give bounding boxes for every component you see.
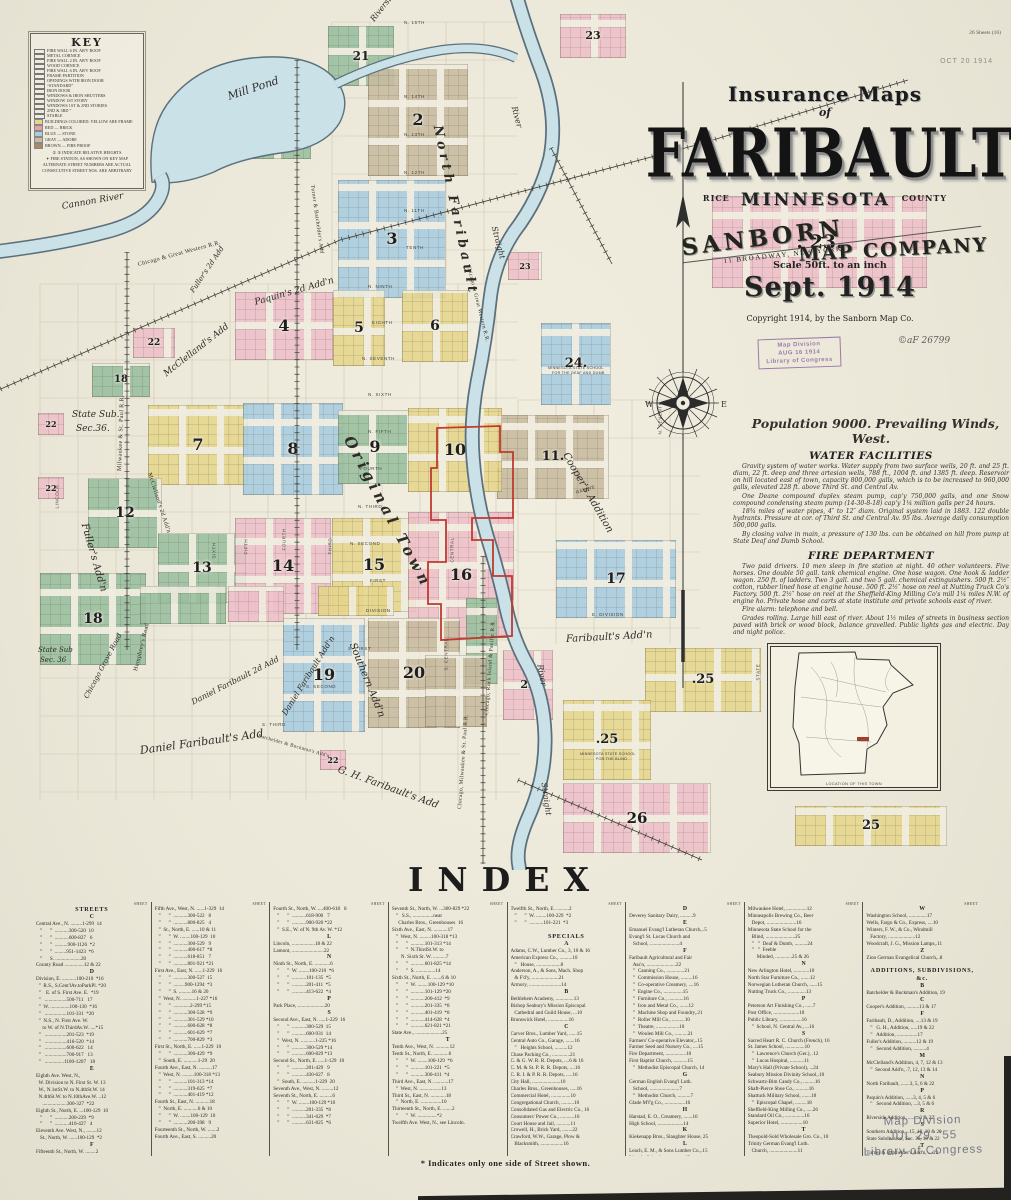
index-entry: Bishop Seabury's Mission Episcopal	[511, 1003, 623, 1010]
key-color-swatch	[34, 143, 43, 149]
index-entry: North Faribault, .......3, 5, 6 & 22	[866, 1081, 978, 1088]
index-entry: ” ” ...........401-419 *12	[155, 1092, 267, 1099]
key-color-label: GRAY — ADOBE	[45, 138, 77, 143]
index-entry: Milwaukee Hotel, ................12	[748, 906, 860, 913]
index-entry: ” Canning Co., ..............21	[629, 968, 741, 975]
key-footnote: CONSECUTIVE STREET NOS. ARE ARBITRARY	[34, 168, 140, 173]
index-entry: ADDITIONS, SUBDIVISIONS, &c.	[866, 967, 978, 983]
index-entry: ” ” W. ........100-210 *6	[273, 968, 385, 975]
index-entry: Washington School, ..............17	[866, 913, 978, 920]
index-entry: ” ” ...........300-528 *9	[155, 1010, 267, 1017]
index-entry: ” ” ...........618-851 7	[155, 954, 267, 961]
city-title: FARIBAULT	[646, 114, 1005, 193]
index-entry: School, .......................4	[629, 941, 741, 948]
index-entry: ” ” ...........300-411 *4	[392, 1072, 504, 1079]
index-entry: High School, ....................14	[629, 1121, 741, 1128]
fire-department-title: FIRE DEPARTMENT	[733, 550, 1009, 562]
index-entry: Nutting Truck Co., ..............13	[748, 989, 860, 996]
index-entry: Crawford, W.W., Garage, Plow &	[511, 1134, 623, 1141]
index-entry: Public Library, .................16	[748, 1017, 860, 1024]
index-entry: Carver Bros., Lumber Yard, ......15	[511, 1031, 623, 1038]
index-entry: ” ” .............2-299 *15	[155, 1003, 267, 1010]
stats-paragraph: 18¾ miles of water pipes, 4″ to 12″ diam…	[733, 509, 1009, 530]
index-entry: ” Second Add'n, .7, 12, 13 & 14	[866, 1067, 978, 1074]
index-entry: Brunswick Hotel, ................16	[511, 1017, 623, 1024]
index-entry: Fifth Ave., West, N. ......1-329 14	[155, 906, 267, 913]
index-entry: ” ” Deaf & Dumb, ..........24	[748, 941, 860, 948]
index-entry: ” ” .........900-1294 *3	[155, 982, 267, 989]
index-entry: City Hall, ......................10	[511, 1079, 623, 1086]
index-entry: D	[629, 906, 741, 913]
index-entry: ” ” ...........400-617 *8	[155, 947, 267, 954]
index-entry: ” Iron and Metal Co., .......12	[629, 1003, 741, 1010]
index-entry: Evang'l St. Lucas Church and	[629, 934, 741, 941]
index-entry: First Ave., East, N. ......1-229 16	[155, 968, 267, 975]
index-entry: ” ” N.ThirdSt.W. to	[392, 947, 504, 954]
index-entry: Thirteenth St., North, E. .......2	[392, 1106, 504, 1113]
index-entry: ” Second Addition, ...3, 5 & 6	[866, 1101, 978, 1108]
index-entry: ” ” ...........600-829 *13	[273, 1051, 385, 1058]
index-entry: Sixth Ave., East, N. ...........17	[392, 927, 504, 934]
key-color-label: RED — BRICK	[45, 126, 72, 131]
index-entry: & F'd'y, .....................21	[511, 975, 623, 982]
key-color-entry: BROWN — FIRE PROOF	[34, 143, 140, 149]
index-entry: Wells, Fargo & Co., Express, ....10	[866, 920, 978, 927]
index-entry: ” E. of S. First Ave. E. *19	[36, 990, 148, 997]
index-entry: C	[36, 914, 148, 921]
key-color-label: BROWN — FIRE PROOF	[45, 144, 91, 149]
index-entry: ” Co-operative Creamery, ....16	[629, 982, 741, 989]
index-entry: Court House and Jail, ...........11	[511, 1121, 623, 1128]
index-entry: Schwartz-Bim Candy Co., .........16	[748, 1079, 860, 1086]
index-entry: Fuller's Addition, ..........12 & 19	[866, 1039, 978, 1046]
index-column: SHEETSeventh St., North, W. ...300-829 *…	[388, 902, 507, 1156]
index-entry: ” ” ...........414-628 *4	[392, 1017, 504, 1024]
index-entry: ” ” ..........900-1126 *2	[36, 942, 148, 949]
minnesota-outline	[771, 647, 935, 779]
index-entry: ” ” W. ........100-229 *2	[511, 913, 623, 920]
index-entry: ” ” ...........621-821 *21	[392, 1023, 504, 1030]
index-entry: ” Addition, ................17	[866, 1032, 978, 1039]
index-entry: ” ” ...........201-335 *8	[273, 1107, 385, 1114]
straight-river	[472, 0, 552, 870]
index-entry: Leach, E. M., & Sons Lumber Co.,.15	[629, 1148, 741, 1155]
index-entry: Norwegian Lutheran Church, ......15	[748, 982, 860, 989]
index-entry: ” ” ...........800-825 4	[155, 920, 267, 927]
index-column: SHEETFifth Ave., West, N. ......1-329 14…	[151, 902, 270, 1156]
index-entry: ” .................416-520 *14	[36, 1039, 148, 1046]
index-entry: ” Episcopal Chapel, .........18	[748, 1100, 860, 1107]
stats-paragraph: Gravity system of water works. Water sup…	[733, 464, 1009, 492]
index-entry: ” ” S. ...............14	[392, 968, 504, 975]
index-entry: C	[866, 997, 978, 1004]
index-entry: Fifteenth St., North, W. ........2	[36, 1149, 148, 1156]
index-entry: ” N.S., N. First Ave. W.	[36, 1018, 148, 1025]
index-entry: New Arlington Hotel, ............10	[748, 968, 860, 975]
index-entry: Z	[866, 948, 978, 955]
index-entry: ” ” ...........430-627 8	[273, 1072, 385, 1079]
key-footnote: ALTERNATE STREET NUMBERS ARE ACTUAL	[34, 162, 140, 167]
index-entry: M	[866, 1053, 978, 1060]
index-entry: ” ” ...........200-412 *9	[392, 996, 504, 1003]
index-entry: D	[36, 969, 148, 976]
index-entry: Charles Bros., Greenhouses, .....16	[511, 1086, 623, 1093]
index-entry: ” Methodist Episcopal Church, 14	[629, 1065, 741, 1072]
index-entry: Peterson Art Finishing Co., ......7	[748, 1003, 860, 1010]
index-entry: Emanuel Evang'l Lutheran Church,..5	[629, 927, 741, 934]
index-entry: Central Ave., N. .........1-299 14	[36, 921, 148, 928]
index-entry: Eleventh Ave. West, N., ........12	[36, 1128, 148, 1135]
index-entry: A	[511, 941, 623, 948]
index-entry: Faribault, D., Addition, ....13 & 19	[866, 1018, 978, 1025]
index-entry: S	[748, 1031, 860, 1038]
index-entry: W. Division to N. First St. W. 13	[36, 1080, 148, 1087]
index-entry: ” ” ...........618-900 7	[273, 913, 385, 920]
index-entry: ” ” ...........601-629 *7	[155, 1030, 267, 1037]
key-footnote: ✦ FIRE STATION, AS SHOWN ON KEY MAP	[34, 156, 140, 161]
map-scale: Scale 50ft. to an inch	[730, 260, 930, 271]
index-entry: Second St., North, E. .....1-129 10	[273, 1058, 385, 1065]
title-line1: Insurance Maps	[695, 82, 955, 106]
key-color-entries: BUILDINGS COLORED: YELLOW ARE FRAMERED —…	[34, 119, 140, 149]
index-entry: Fire Department, ................10	[629, 1051, 741, 1058]
index-entry: McClelland's Addition, 4, 7, 12 & 13	[866, 1060, 978, 1067]
index-entry: ” ” ...........200-229 *9	[36, 1115, 148, 1122]
index-entry: Sheffield-King Milling Co., .....26	[748, 1107, 860, 1114]
index-entry: Cathedral and Guild House, ...10	[511, 1010, 623, 1017]
index-entry: Deverey Sanitary Dairy, ..........9	[629, 913, 741, 920]
index-entry: Kiekenapp Bros., Slaughter House, 25	[629, 1134, 741, 1141]
key-color-label: BUILDINGS COLORED: YELLOW ARE FRAME	[45, 120, 133, 125]
index-entry: German English Evang'l Luth.	[629, 1079, 741, 1086]
library-of-congress-stamp: Map Division JUL 29, '55 Library of Cong…	[827, 1112, 1011, 1162]
county-left: RICE	[703, 193, 730, 203]
index-column: SHEETFourth St., North, W. ....400-618 8…	[269, 902, 388, 1156]
index-entry: ” North, E. ................10	[392, 1099, 504, 1106]
key-footnotes: ② ③ INDICATE RELATIVE HEIGHTS✦ FIRE STAT…	[34, 150, 140, 173]
index-entry: North Star Furniture Co., .......12	[748, 975, 860, 982]
index-entry: ” ” ...........300-520 10	[36, 928, 148, 935]
sheets-note: 26 Sheets (16)	[969, 30, 1001, 36]
index-entry: ” ” Feeble	[748, 947, 860, 954]
map-key-legend: KEY FIRE WALL 6 IN. AB'V ROOFMETAL CORNI…	[30, 33, 144, 189]
index-entry: First St., North, E. ......1-229 10	[155, 1044, 267, 1051]
index-entry: Batchelder & Buckman's Addition, 19	[866, 990, 978, 997]
index-entry: St. James School, ...............10	[748, 1044, 860, 1051]
index-entry: State Ave., .....................25	[392, 1030, 504, 1037]
index-entry: ” Engine Co., ...............15	[629, 989, 741, 996]
index-entry: St., North, W. ......100-129 *2	[36, 1135, 148, 1142]
index-entry: ” S. ....................20	[36, 956, 148, 963]
index-entry: Crowell, H., Brick Yard, ........22	[511, 1127, 623, 1134]
index-entry: ” .................201-523 *19	[36, 1032, 148, 1039]
index-entry: Factory, .....................12	[866, 934, 978, 941]
index-entry: E	[629, 920, 741, 927]
index-entry: F	[866, 1011, 978, 1018]
index-entry: Paquin's Addition, ......3, 4, 5 & 6	[866, 1095, 978, 1102]
index-entry: Tenth St., North, E. ............6	[392, 1051, 504, 1058]
index-entry: P	[748, 996, 860, 1003]
index-entry: Seventh St., North, E. ..........6	[273, 1093, 385, 1100]
index-entry: ” ” ...........413-622 *4	[273, 989, 385, 996]
faribault-location-marker	[857, 737, 869, 741]
index-entry: Lamont, .........................22	[273, 948, 385, 955]
index-entry: S	[273, 1010, 385, 1017]
index-entry: First Baptist Church, ...........15	[629, 1058, 741, 1065]
index-entry: W	[866, 906, 978, 913]
index-entry: Depot, .......................16	[748, 920, 860, 927]
index-entry: Commercial Hotel, ...............10	[511, 1093, 623, 1100]
index-entry: ” Lawrence's Church (Ger.), .12	[748, 1051, 860, 1058]
index-entry: Twelfth St., North, E. ..........2	[511, 906, 623, 913]
index-entry: T	[392, 1037, 504, 1044]
index-entry: ” ” ...........300-527 15	[155, 975, 267, 982]
stats-paragraph: Grades rolling. Large hill east of river…	[733, 616, 1009, 637]
index-entry: K	[629, 1127, 741, 1134]
index-column: SHEETTwelfth St., North, E. ..........2 …	[507, 902, 626, 1156]
edition-date: Sept. 1914	[730, 272, 930, 303]
index-entry: ” North, E. ...........6 & 10	[155, 1106, 267, 1113]
index-entry: Anderson, A., & Sons, Mach. Shop	[511, 968, 623, 975]
index-entry: Congregational Church, ..........10	[511, 1100, 623, 1107]
stamp-line3: Library of Congress	[766, 356, 833, 366]
fire-department-text: Two paid drivers. 10 men sleep in fire s…	[733, 564, 1009, 637]
index-entry: Fourth St., North, W. ....400-618 8	[273, 906, 385, 913]
index-entry: ” ” ...........300-529 9	[155, 941, 267, 948]
index-entry: Woodcraft, J. G., Mission Lamps,.11	[866, 941, 978, 948]
index-entry: ” ” ...........341-629 *7	[273, 1114, 385, 1121]
index-entry: ” West, N. .........100-318 *13	[392, 934, 504, 941]
index-entry: ” ” ...........600-628 *8	[155, 1023, 267, 1030]
index-entry: SPECIALS	[511, 933, 623, 941]
index-entry: ” ” ...........101-221 *3	[511, 920, 623, 927]
index-entry: ” ” ...........801-921 *21	[155, 961, 267, 968]
index-entry: Faribault Agricultural and Fair	[629, 955, 741, 962]
index-entry: Seventh Ave., West, N. .........12	[273, 1086, 385, 1093]
index-entry: Blacksmith, ..................16	[511, 1141, 623, 1148]
index-entry: American Express Co., ..........10	[511, 955, 623, 962]
index-entry: ” House, ...................8	[511, 962, 623, 969]
index-entry: Second Ave., East, N. .....1-229 16	[273, 1017, 385, 1024]
stats-paragraph: Two paid drivers. 10 men sleep in fire s…	[733, 564, 1009, 605]
key-color-label: BLUE — STONE	[45, 132, 76, 137]
index-entry: Fourteenth St., North, W. .......2	[155, 1127, 267, 1134]
index-column: SHEETSTREETSCCentral Ave., N. .........1…	[33, 902, 151, 1156]
index-entry: Cooper's Addition, ..........13 & 17	[866, 1004, 978, 1011]
index-entry: C. M. & St. P. R. R. Depots, ....16	[511, 1065, 623, 1072]
index-column: SHEETDDeverey Sanitary Dairy, ..........…	[625, 902, 744, 1156]
index-entry: G	[629, 1072, 741, 1079]
index-entry: Ass'n, .......................22	[629, 962, 741, 969]
index-entry: ” ” ...........101-313 *14	[392, 941, 504, 948]
index-entry: ” ” W. ........100-129 10	[155, 1113, 267, 1120]
index-entry: C. & G. W. R. R. Depots, ....6 & 16	[511, 1058, 623, 1065]
index-entry: ” Woolen Mill Co., ..........21	[629, 1031, 741, 1038]
sanborn-map-sheet: { "meta": {"sheets_note": "26 Sheets (16…	[0, 0, 1011, 1200]
index-entry: N.4thSt.W. to N.10thAve.W. ..12	[36, 1094, 148, 1101]
index-entry: Fourth St., East, N. ...........18	[155, 1099, 267, 1106]
index-entry: Minnesota State School for the	[748, 927, 860, 934]
index-entry: ” ” S. ..........16 & 20	[155, 989, 267, 996]
index-entry: N. Sixth St. W. ..........7	[392, 954, 504, 961]
index-entry: ...................300-327 *22	[36, 1101, 148, 1108]
index-entry: ” South, E. ...........1-29 20	[155, 1058, 267, 1065]
index-entry: ” ” .........951-1423 *6	[36, 949, 148, 956]
index-entry: P	[866, 1088, 978, 1095]
index-entry: ” ” ...........401-419 *8	[392, 1010, 504, 1017]
index-entry: ” Heights School, ..........12	[511, 1045, 623, 1052]
index-entry: Winters, F. W., & Co., Windmill	[866, 927, 978, 934]
index-entry: P	[273, 996, 385, 1003]
index-entry: ” ” ...........600-827 6	[36, 935, 148, 942]
index-entry: ” ” ...........900-920 *22	[273, 920, 385, 927]
key-entries: FIRE WALL 6 IN. AB'V ROOFMETAL CORNICEFI…	[34, 49, 140, 119]
index-entry: ” ” ...........200-398 9	[155, 1120, 267, 1127]
index-entry: ” Furniture Co., ............16	[629, 996, 741, 1003]
index-entry: Shattuck Military School, .......18	[748, 1093, 860, 1100]
index-entry: ” ” ...........300-522 8	[155, 913, 267, 920]
index-entry: Adams, C.W., Lumber Co., 3, 10 & 16	[511, 948, 623, 955]
index-entry: ” .................700-917 13	[36, 1052, 148, 1059]
index-entry: ” .................101-331 *20	[36, 1011, 148, 1018]
index-entry: Eighth Ave. West, N.,	[36, 1073, 148, 1080]
index-entry: ” ” ...........300-529 *14	[273, 1045, 385, 1052]
index-entry: ” West, N. ...........1-225 *16	[273, 1038, 385, 1045]
index-entry: Charles Bros., Greenhouses 16	[392, 920, 504, 927]
index-entry: Lincoln, ..................18 & 22	[273, 941, 385, 948]
index-entry: School, .......................7	[629, 1086, 741, 1093]
population-line: Population 9000. Prevailing Winds, West.	[733, 416, 1009, 446]
index-entry: Consolidated Gas and Electric Co., 16	[511, 1107, 623, 1114]
index-entry: Armory, .........................14	[511, 982, 623, 989]
index-entry: ” West, N. .........100-318 *13	[155, 1072, 267, 1079]
index-entry: Mary's Hall (Private School), ...24	[748, 1065, 860, 1072]
index-entry: Shaft-Pierce Shoe Co., ..........16	[748, 1086, 860, 1093]
town-statistics: Population 9000. Prevailing Winds, West.…	[733, 416, 1009, 639]
index-entry: ” ...............1100-1207 18	[36, 1059, 148, 1066]
index-entry: ” ” W. ........100-129 *6	[392, 1058, 504, 1065]
index-entry: ” ” ...........601-825 *14	[392, 961, 504, 968]
index-entry: ” ” ...........101-313 *14	[155, 1079, 267, 1086]
index-entry: Third Ave., East, N. ...........17	[392, 1079, 504, 1086]
index-entry: ” West, N. .................13	[392, 1086, 504, 1093]
key-footnote: ② ③ INDICATE RELATIVE HEIGHTS	[34, 150, 140, 155]
index-entry: Minneapolis Brewing Co., Beer	[748, 913, 860, 920]
locator-caption: LOCATION OF THIS TOWN	[771, 782, 937, 786]
index-entry: ” ” ...........700-829 *3	[155, 1037, 267, 1044]
key-title: KEY	[34, 36, 140, 49]
index-entry: ” West, N. ...........1-227 *16	[155, 996, 267, 1003]
state-name: MINNESOTA	[741, 190, 891, 210]
index-entry: C	[511, 1024, 623, 1031]
index-entry: ” ” ...........600-931 14	[273, 1031, 385, 1038]
index-section: INDEX SHEETSTREETSCCentral Ave., N. ....…	[0, 856, 1011, 1200]
index-entry: Glade M'f'g Co., ................16	[629, 1100, 741, 1107]
index-entry: ” G. H., Addition, .....19 & 22	[866, 1025, 978, 1032]
index-entry: H	[629, 1107, 741, 1114]
index-entry: N	[273, 954, 385, 961]
index-entry: F	[36, 1142, 148, 1149]
index-entry: ” W. ...............100-130 *16	[36, 1004, 148, 1011]
index-entry: Ninth St., North, E. ............6	[273, 961, 385, 968]
library-stamp: Map Division AUG 16 1914 Library of Cong…	[758, 337, 842, 370]
stats-paragraph: By closing valve in main, a pressure of …	[733, 532, 1009, 546]
index-entry: Seabury Mission Divinity School,.10	[748, 1072, 860, 1079]
index-entry: to W. of N.ThirdAv.W. ....*15	[36, 1025, 148, 1032]
index-entry: ” ” ...........101-129 *20	[392, 989, 504, 996]
scan-edge-shadow-right	[1004, 1056, 1011, 1200]
index-entry: Central Auto Co., Garage, .......16	[511, 1038, 623, 1045]
index-entry: ” ” ...........201-429 9	[273, 1065, 385, 1072]
index-entry: Farmer Seed and Nursery Co., ....15	[629, 1044, 741, 1051]
index-entry: ” Methodist Church, ..........7	[629, 1093, 741, 1100]
index-entry: ” Lucas Hospital, ...........11	[748, 1058, 860, 1065]
minnesota-locator-map: LOCATION OF THIS TOWN	[770, 646, 938, 788]
index-entry: ” ” ...........101-221 *5	[392, 1065, 504, 1072]
index-entry: F	[629, 948, 741, 955]
index-entry: ” ” ...........631-825 *6	[273, 1120, 385, 1127]
index-entry: Consumers' Power Co., ...........16	[511, 1114, 623, 1121]
title-block: 26 Sheets (16) OCT 20 1914 Insurance Map…	[640, 24, 1011, 414]
index-entry: Farmers' Co-operative Elevator,..15	[629, 1038, 741, 1045]
mill-pond	[151, 57, 345, 183]
index-entry: ” Theatre, ..................10	[629, 1024, 741, 1031]
index-entry: Chase Packing Co., ..............21	[511, 1052, 623, 1059]
index-entry: STREETS	[36, 906, 148, 914]
water-facilities-title: WATER FACILITIES	[733, 450, 1009, 462]
index-entry: Third St., East, N. ............18	[392, 1093, 504, 1100]
stats-paragraph: One Deane compound duplex steam pump, ca…	[733, 494, 1009, 508]
index-entry: N	[866, 1074, 978, 1081]
index-entry: ” St., North, E. ......10 & 11	[155, 927, 267, 934]
index-entry: Sacred Heart R. C. Church (French), 16	[748, 1038, 860, 1045]
index-entry: Sixth St., North, E. .......6 & 10	[392, 975, 504, 982]
index-entry: Post Office, ....................10	[748, 1010, 860, 1017]
index-entry: L	[273, 934, 385, 941]
index-entry: Lincoln School, .................13	[629, 1155, 741, 1156]
index-entry: Blind, .......................25	[748, 934, 860, 941]
index-entry: ” ” ...........300-529 15	[273, 1024, 385, 1031]
index-entry: N	[748, 961, 860, 968]
index-entry: ” ” ...........319-625 *7	[155, 1086, 267, 1093]
index-entry: ” Commission House, .........16	[629, 975, 741, 982]
index-entry: E	[36, 1066, 148, 1073]
index-entry: Bethlehem Academy, ..............13	[511, 996, 623, 1003]
index-entry: ” ” ...........416-427 4	[36, 1121, 148, 1128]
index-entry: ” ” ...........301-529 *10	[155, 1017, 267, 1024]
index-entry: ” R.S., S.Cent'lAv.toParkPl. *20	[36, 983, 148, 990]
index-entry: W., N.1stSt.W. to N.4thSt.W. 14	[36, 1087, 148, 1094]
copyright-line: Copyright 1914, by the Sanborn Map Co.	[700, 314, 960, 323]
index-entry: ” S.E., W. of N. 9th Av. W. *12	[273, 927, 385, 934]
index-entry: ” ” ...........201-411 *5	[273, 982, 385, 989]
index-entry: Fourth Ave., East, S. ..........20	[155, 1134, 267, 1141]
index-entry: ” ” W. ...............*2	[392, 1113, 504, 1120]
index-entry: Eighth St., North, E. ...100-129 10	[36, 1108, 148, 1115]
stats-paragraph: Fire alarm: telephone and bell.	[733, 607, 1009, 614]
index-entry: Division, E. ...........100-210 *16	[36, 976, 148, 983]
index-entry: ” ” ...........201-335 *8	[392, 1003, 504, 1010]
index-entry: ” South, E. ..........1-229 20	[273, 1079, 385, 1086]
index-entry: ” ” W. ........100-129 *10	[392, 982, 504, 989]
index-entry: ” Machine Shop and Foundry,.21	[629, 1010, 741, 1017]
received-date-stamp: OCT 20 1914	[940, 58, 993, 65]
index-entry: ” ” ...........300-429 *9	[155, 1051, 267, 1058]
water-facilities-text: Gravity system of water works. Water sup…	[733, 464, 1009, 546]
index-entry: Harstad, E. O., Creamery, .......16	[629, 1114, 741, 1121]
index-entry: B	[511, 989, 623, 996]
index-entry: ” Roller Mill Co., ..........10	[629, 1017, 741, 1024]
